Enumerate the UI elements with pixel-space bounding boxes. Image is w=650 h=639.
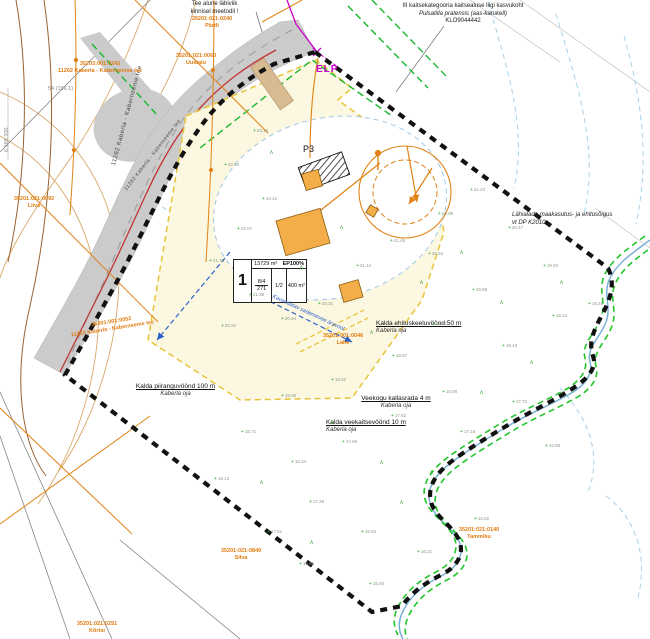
cadastral-label: 35201:021:0060Uustalu	[166, 53, 226, 66]
spot-elevation: +17.96	[342, 439, 357, 445]
spot-elevation: +22.41	[262, 196, 277, 202]
spot-elevation: +17.15	[460, 429, 475, 435]
cadastral-label: 35201:021:0840Silva	[211, 548, 271, 561]
spot-elevation: +22.07	[237, 226, 252, 232]
spot-elevation: +21.45	[390, 238, 405, 244]
spot-elevation: +22.84	[224, 162, 239, 168]
spot-elevation: +16.52	[474, 516, 489, 522]
spot-elevation: +17.72	[512, 399, 527, 405]
spot-elevation: +18.12	[214, 476, 229, 482]
spot-elevation: +16.94	[361, 529, 376, 535]
pipe-reference-label: 54 (196.1)	[48, 86, 73, 93]
spot-elevation: +23.12	[253, 128, 268, 134]
spot-elevation: +18.34	[291, 459, 306, 465]
spot-elevation: +18.08	[442, 389, 457, 395]
vegetation-mark: ʌ	[270, 150, 273, 156]
road-crossing-note: Tee alune läbiviik kinnisel meetodil !	[162, 1, 267, 16]
zone-label-100m: Kalda piiranguvöönd 100 m Kaberla oja	[118, 383, 233, 399]
vegetation-mark: ʌ	[560, 280, 563, 286]
spot-elevation: +17.62	[391, 413, 406, 419]
vegetation-mark: ʌ	[300, 265, 303, 271]
grid-coordinate-label: 6 585 200	[4, 100, 11, 152]
p3-label: P3	[303, 144, 314, 155]
spot-elevation: +16.88	[545, 443, 560, 449]
elp-label: ELP	[316, 64, 338, 77]
vegetation-mark: ʌ	[380, 460, 383, 466]
plot-max-area: 400 m²	[287, 269, 306, 302]
spot-elevation: +19.58	[472, 287, 487, 293]
spot-elevation: +15.94	[369, 581, 384, 587]
spot-elevation: +19.12	[552, 313, 567, 319]
vegetation-mark: ʌ	[330, 420, 333, 426]
spot-elevation: +19.46	[588, 301, 603, 307]
spot-elevation: +17.28	[309, 499, 324, 505]
spot-elevation: +20.31	[318, 301, 333, 307]
neighbor-note: Lähialade maakasutus- ja ehitusõigus vt …	[512, 212, 642, 227]
vegetation-mark: ʌ	[430, 470, 433, 476]
vegetation-mark: ʌ	[310, 540, 313, 546]
spot-elevation: +21.12	[356, 263, 371, 269]
spot-elevation: +21.38	[249, 292, 264, 298]
cadastral-label: 35201:021:0092Liiva	[4, 196, 64, 209]
spot-elevation: +19.21	[432, 321, 447, 327]
vegetation-mark: ʌ	[500, 300, 503, 306]
vegetation-mark: ʌ	[400, 500, 403, 506]
vegetation-mark: ʌ	[480, 390, 483, 396]
vegetation-mark: ʌ	[370, 330, 373, 336]
spot-elevation: +20.62	[428, 251, 443, 257]
zone-label-4m: Veekogu kallasrada 4 m Kaberla oja	[340, 395, 452, 411]
cadastral-label: 35201:021:0140Tammiku	[449, 527, 509, 540]
spot-elevation: +20.92	[221, 323, 236, 329]
protected-species-note: III kaitsekategooria kaitsealuse liigi k…	[378, 3, 548, 26]
spot-elevation: +20.47	[508, 225, 523, 231]
vegetation-mark: ʌ	[460, 250, 463, 256]
spot-elevation: +18.52	[331, 377, 346, 383]
spot-elevation: +20.88	[438, 211, 453, 217]
cadastral-label: 35201:021:0251Kõrtsi	[67, 621, 127, 634]
spot-elevation: +19.93	[543, 263, 558, 269]
spot-elevation: +18.87	[392, 353, 407, 359]
detail-plan-map: Tee alune läbiviik kinnisel meetodil ! I…	[0, 0, 650, 639]
spot-elevation: +20.64	[281, 316, 296, 322]
spot-elevation: +17.51	[267, 529, 282, 535]
spot-elevation: +18.43	[502, 343, 517, 349]
spot-elevation: +16.65	[299, 561, 314, 567]
vegetation-mark: ʌ	[340, 225, 343, 231]
spot-elevation: +21.76	[209, 258, 224, 264]
cadastral-label: 35201:021:0240Pärtli	[157, 16, 267, 29]
vegetation-mark: ʌ	[530, 360, 533, 366]
vegetation-mark: ʌ	[420, 280, 423, 286]
spot-elevation: +19.05	[281, 393, 296, 399]
cadastral-label: 35203:001:024311262 Kaberla - Kaberneeme…	[40, 61, 160, 74]
zone-label-10m: Kalda veekaitsevöönd 10 m Kaberla oja	[326, 419, 451, 435]
spot-elevation: +21.24	[470, 187, 485, 193]
vegetation-mark: ʌ	[260, 480, 263, 486]
plot-area: 13729 m²	[254, 261, 277, 267]
spot-elevation: +16.21	[417, 549, 432, 555]
spot-elevation: +18.71	[241, 429, 256, 435]
